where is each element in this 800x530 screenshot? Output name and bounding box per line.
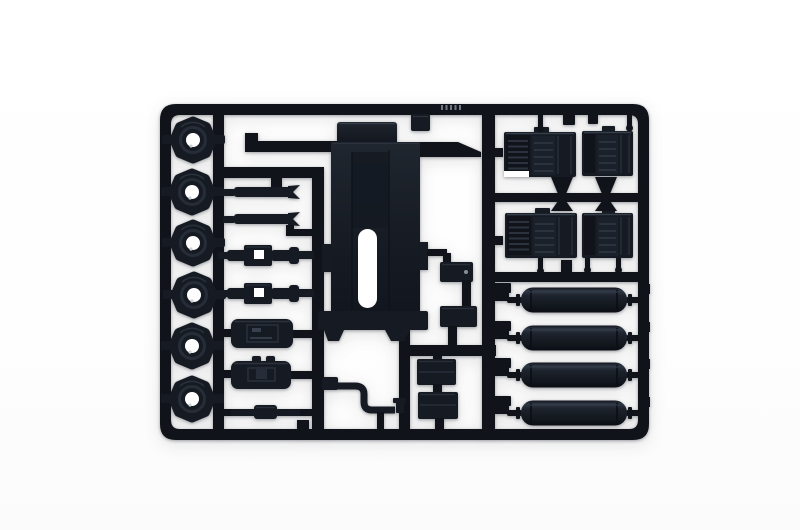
- exhaust-pipe-part: [322, 377, 406, 430]
- small-block-part: [417, 354, 456, 385]
- fuel-tank-part: [222, 319, 313, 348]
- grille-panel-part: [582, 126, 633, 176]
- air-tank-part: [494, 358, 650, 388]
- leaf-spring-part: [223, 212, 300, 226]
- axle-part: [218, 283, 314, 304]
- sprue-image: Black plastic model kit sprue (injection…: [0, 0, 800, 530]
- air-tank-part: [494, 321, 650, 351]
- grille-panel-part: [582, 208, 633, 258]
- grille-panel-part: [504, 127, 576, 177]
- fuel-tank-part: [222, 356, 313, 389]
- small-block-part: [440, 280, 477, 347]
- muffler-part: [223, 405, 313, 419]
- grille-panel-part: [505, 208, 577, 258]
- axle-part: [218, 245, 314, 266]
- air-tank-part: [494, 396, 650, 426]
- hood-plate-part: [318, 122, 428, 341]
- leaf-spring-part: [223, 185, 300, 199]
- grille-notch: [504, 171, 529, 177]
- small-block-part: [418, 384, 458, 430]
- air-tank-part: [494, 283, 650, 313]
- small-block-part: [427, 249, 473, 282]
- sprue-photo: Black plastic model kit sprue (injection…: [0, 0, 800, 530]
